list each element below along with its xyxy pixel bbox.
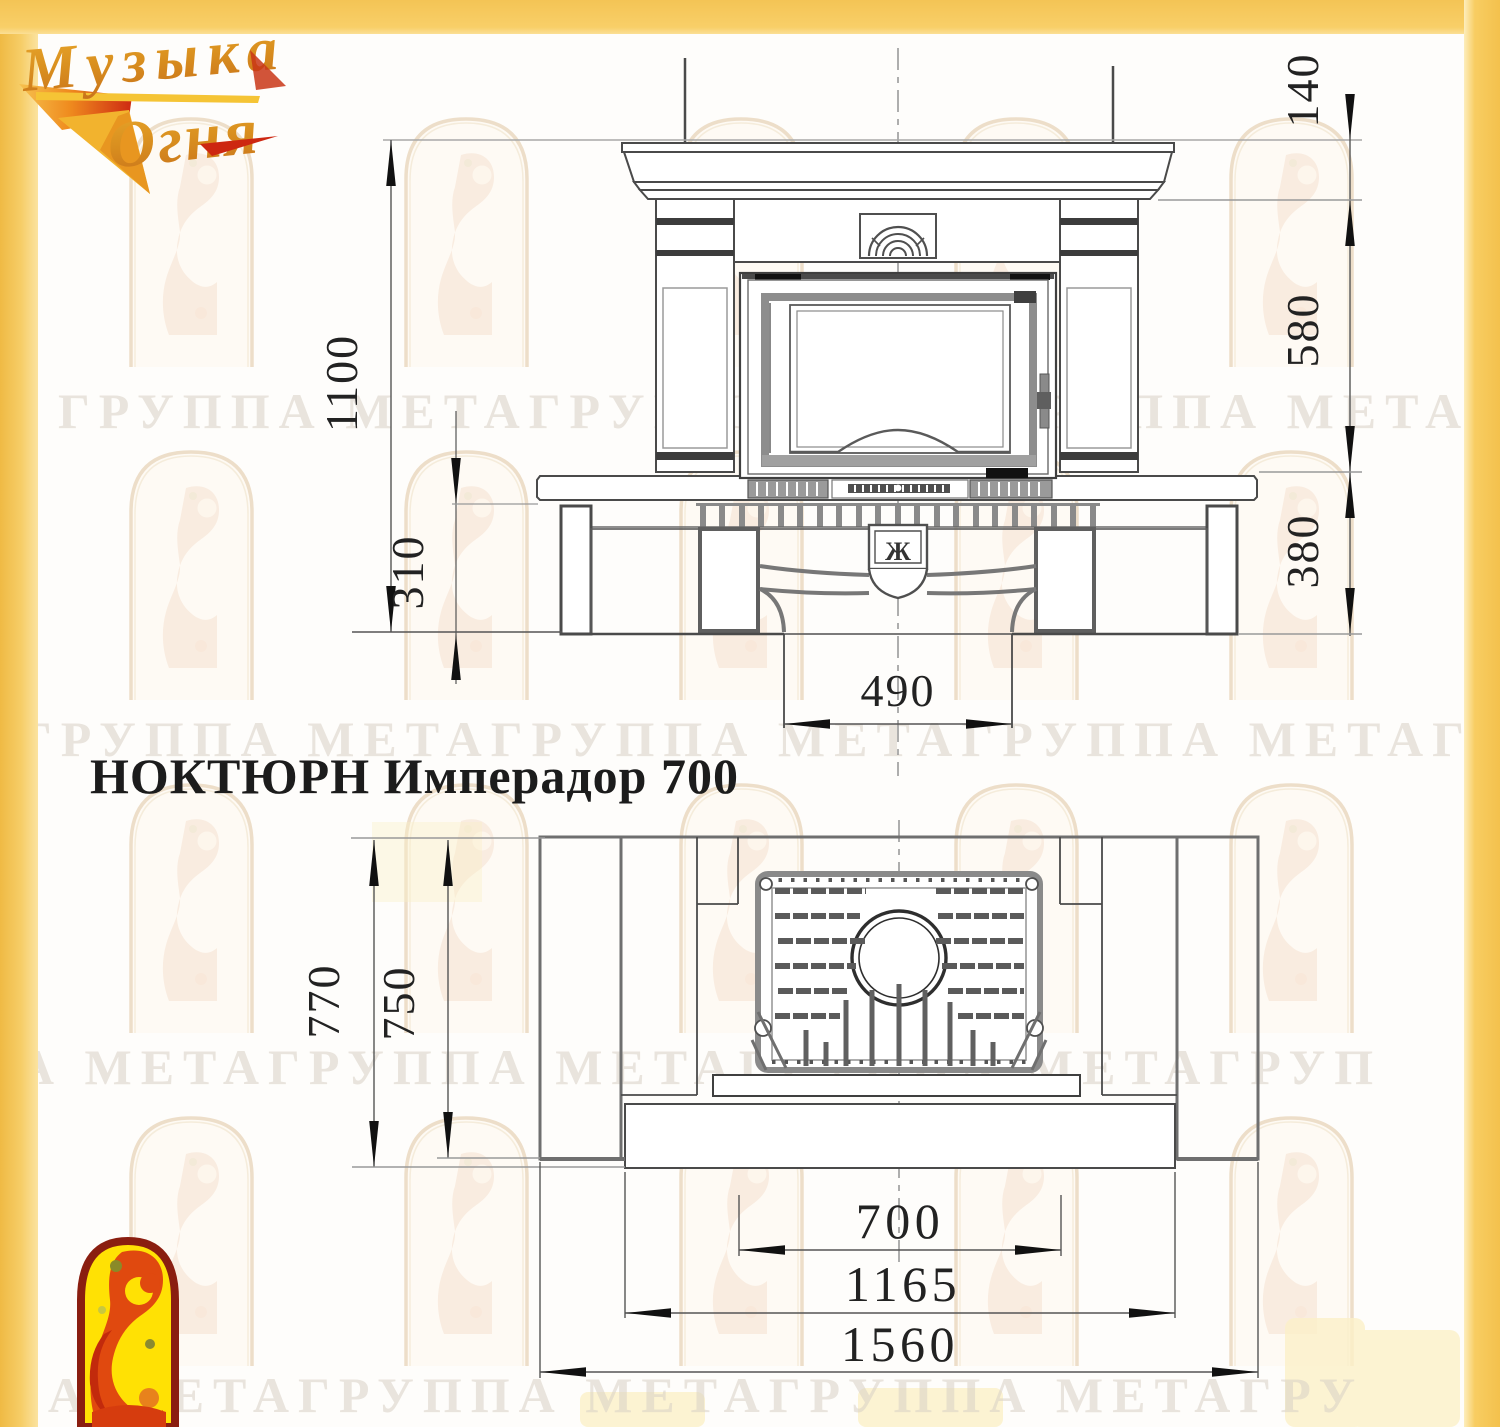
svg-text:1165: 1165 xyxy=(845,1256,961,1312)
svg-text:Ж: Ж xyxy=(885,537,911,566)
svg-text:490: 490 xyxy=(861,665,936,716)
svg-text:380: 380 xyxy=(1277,514,1328,589)
svg-text:580: 580 xyxy=(1277,293,1328,368)
svg-text:1560: 1560 xyxy=(841,1316,959,1372)
svg-text:310: 310 xyxy=(382,535,433,610)
svg-text:НОКТЮРН Имперадор 700: НОКТЮРН Имперадор 700 xyxy=(90,748,739,804)
svg-text:700: 700 xyxy=(856,1193,945,1249)
svg-text:750: 750 xyxy=(373,966,424,1041)
svg-text:140: 140 xyxy=(1277,53,1328,128)
svg-text:ПА МЕТАГРУППА МЕТАГРУППА МЕТАГ: ПА МЕТАГРУППА МЕТАГРУППА МЕТАГРУП xyxy=(0,1039,1382,1095)
svg-text:770: 770 xyxy=(298,964,349,1039)
svg-text:1100: 1100 xyxy=(316,334,367,432)
svg-text:НА МЕТАГРУППА МЕТАГРУППА МЕТАГ: НА МЕТАГРУППА МЕТАГРУППА МЕТАГРУ xyxy=(0,1367,1364,1423)
